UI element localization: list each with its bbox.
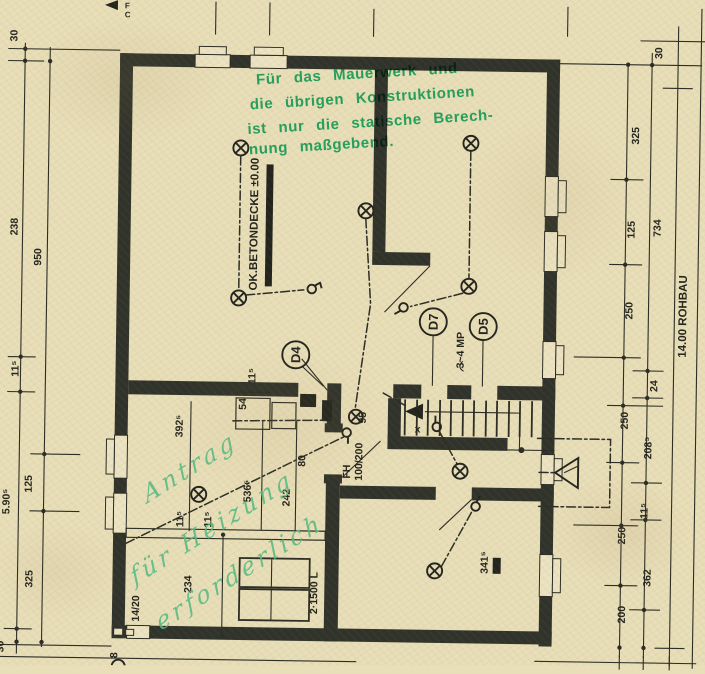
dim-right-24: 24 — [648, 380, 660, 392]
switch-icon — [341, 427, 354, 444]
dim-right-250a: 250 — [623, 302, 635, 320]
dim-3925: 392⁵ — [174, 415, 186, 438]
dim-left-325: 325 — [23, 570, 35, 588]
dim-right-125: 125 — [626, 221, 638, 239]
dim-3415: 341⁵ — [479, 551, 491, 574]
corner-letter-c: C — [125, 10, 131, 19]
dim-115-b: 11⁵ — [174, 511, 186, 527]
dim-3415-bar — [493, 558, 501, 574]
level-reference-bar — [265, 164, 274, 286]
dim-right-2085: 208⁵ — [642, 437, 654, 460]
dim-115-a: 11⁵ — [246, 368, 258, 384]
stair-direction-arrow — [405, 403, 423, 419]
label-stair-x: x — [415, 424, 421, 436]
bottom-mark-circle — [112, 660, 125, 673]
door-label-d7: D7 — [426, 313, 441, 330]
corner-marks: F C — [105, 0, 131, 19]
chimney-block — [236, 393, 333, 430]
dim-right-200: 200 — [616, 606, 628, 624]
dim-right-rohbau: 14.00 ROHBAU — [677, 275, 690, 358]
switch-icon — [393, 301, 410, 318]
dim-80: 80 — [296, 455, 308, 467]
left-arrow-icon — [105, 0, 118, 10]
lamp-icon — [233, 140, 248, 155]
dim-95: 95 — [357, 412, 369, 424]
lamp-icon — [463, 136, 478, 151]
dim-left-950: 950 — [32, 248, 44, 266]
label-tanks: 2·1500 L — [308, 571, 321, 614]
label-mark-8: 8 — [108, 652, 120, 658]
dim-54: 54 — [237, 398, 249, 410]
dim-right-115: 11⁵ — [638, 503, 650, 519]
corner-letter-f: F — [125, 1, 130, 10]
lamp-icon — [461, 279, 476, 294]
lamp-icon — [358, 203, 373, 218]
dim-right-734: 734 — [652, 219, 664, 237]
switch-icon — [306, 278, 325, 297]
lamp-icon — [452, 464, 467, 479]
dim-left-30-bottom: 30 — [0, 640, 7, 652]
label-betondecke: OK.BETONDECKE ±0.00 — [248, 158, 262, 291]
lamp-icon — [427, 563, 442, 578]
door-label-d5: D5 — [476, 318, 491, 335]
lamp-icon — [231, 290, 246, 305]
door-label-d4: D4 — [288, 346, 303, 364]
plan-canvas: D4 D7 D5 F C 30 238 950 11⁵ 5.90⁵ 125 32… — [0, 0, 705, 674]
dim-left-115: 11⁵ — [9, 360, 21, 376]
dim-left-590: 5.90⁵ — [0, 489, 12, 515]
dim-right-362: 362 — [641, 569, 653, 587]
dim-left-30-top: 30 — [8, 29, 20, 41]
dim-right-250c: 250 — [616, 527, 628, 545]
lamp-icon — [191, 487, 206, 502]
label-fh-size: 100/200 — [353, 443, 366, 481]
dim-right-250b: 250 — [619, 412, 631, 430]
dim-left-238: 238 — [9, 218, 21, 236]
scanned-floor-plan: { "colors":{"paper":"#e8deb8","ink":"#2b… — [0, 0, 705, 665]
label-beam-1420: 14/20 — [130, 595, 142, 622]
label-fh: FH — [341, 464, 353, 478]
dim-right-30: 30 — [653, 47, 665, 59]
dim-left-125: 125 — [23, 475, 35, 493]
dim-right-325: 325 — [630, 127, 642, 145]
